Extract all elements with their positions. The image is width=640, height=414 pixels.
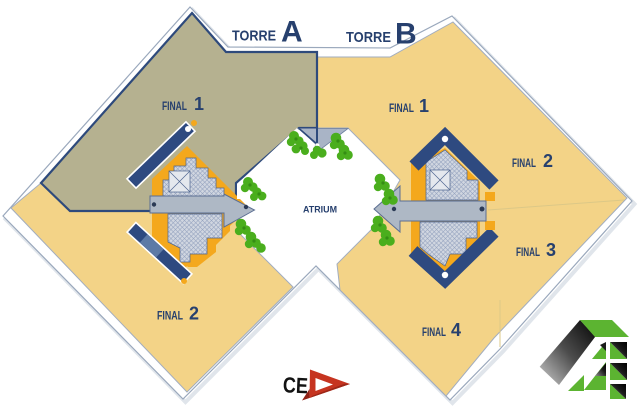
svg-text:FINAL: FINAL [512,156,536,170]
svg-text:FINAL: FINAL [389,101,414,115]
svg-text:3: 3 [546,240,556,260]
svg-text:TORRE: TORRE [346,29,391,46]
svg-text:B: B [395,18,417,51]
svg-text:FINAL: FINAL [516,245,540,259]
svg-text:2: 2 [543,151,553,171]
svg-text:1: 1 [194,94,204,114]
svg-text:FINAL: FINAL [162,99,187,113]
svg-text:1: 1 [419,96,429,116]
svg-text:FINAL: FINAL [422,325,446,339]
svg-text:4: 4 [451,320,461,340]
svg-text:TORRE: TORRE [232,28,276,45]
svg-text:A: A [281,16,303,49]
svg-text:2: 2 [189,304,199,324]
svg-text:FINAL: FINAL [157,309,183,323]
svg-text:CE: CE [282,372,308,398]
svg-text:ATRIUM: ATRIUM [303,205,337,216]
